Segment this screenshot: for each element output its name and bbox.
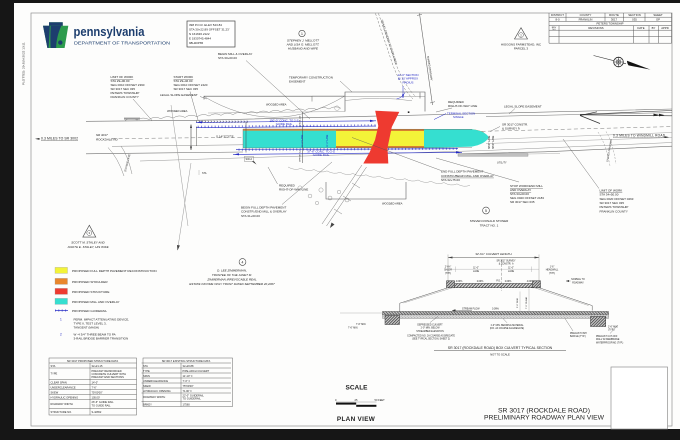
svg-text:ESTATE INCOME ONLY TRUST DATED: ESTATE INCOME ONLY TRUST DATED SEPTEMBER…: [189, 282, 275, 286]
svg-text:7'-0" CLEAR: 7'-0" CLEAR: [525, 296, 528, 309]
svg-text:APPD: APPD: [661, 26, 669, 30]
svg-text:PROPOSED MILL AND OVERLAY: PROPOSED MILL AND OVERLAY: [72, 300, 120, 304]
svg-text:JUDITH E. STALEY, HIS WIFE: JUDITH E. STALEY, HIS WIFE: [67, 245, 109, 249]
svg-text:3017: 3017: [611, 17, 618, 21]
svg-text:ROCKDALE RD: ROCKDALE RD: [96, 138, 119, 142]
svg-text:DEPARTMENT OF TRANSPORTATION: DEPARTMENT OF TRANSPORTATION: [74, 41, 170, 46]
svg-text:SCOTT M. STALEY AND: SCOTT M. STALEY AND: [71, 240, 105, 244]
svg-text:7'-3" ±: 7'-3" ±: [183, 379, 191, 383]
svg-text:1'-0" MIN. BELOW: 1'-0" MIN. BELOW: [421, 328, 441, 330]
svg-text:(TYP.): (TYP.): [445, 273, 452, 275]
svg-text:7'-6": 7'-6": [92, 385, 97, 389]
svg-text:RIGHT-OF-WAY LINE: RIGHT-OF-WAY LINE: [279, 187, 308, 191]
svg-text:PROPOSED SHOULDER: PROPOSED SHOULDER: [72, 280, 108, 284]
svg-text:SR 3017 (ROCKDALE ROAD) BOX CU: SR 3017 (ROCKDALE ROAD) BOX CULVERT TYPI…: [448, 346, 553, 350]
svg-text:ROADWAY WIDTH: ROADWAY WIDTH: [51, 402, 73, 406]
svg-text:PARCEL 3: PARCEL 3: [514, 47, 529, 51]
svg-text:3'-6" RISE: 3'-6" RISE: [517, 297, 519, 308]
svg-text:PLAN VIEW: PLAN VIEW: [337, 416, 376, 423]
svg-text:98H20P65: 98H20P65: [189, 41, 204, 45]
svg-text:75°00'00": 75°00'00": [92, 390, 103, 394]
svg-text:DEPRESSED CULVERT: DEPRESSED CULVERT: [417, 324, 443, 326]
svg-text:TO GUIDE RAIL: TO GUIDE RAIL: [92, 403, 112, 407]
svg-text:75°00'00": 75°00'00": [183, 384, 194, 388]
svg-text:WOODED AREA: WOODED AREA: [266, 103, 287, 107]
svg-text:RIGHT-OF-WAY LINE: RIGHT-OF-WAY LINE: [448, 104, 477, 108]
svg-text:0.3 MILES TO WINDMILL ROAD: 0.3 MILES TO WINDMILL ROAD: [613, 133, 666, 137]
svg-text:FRANKLIN: FRANKLIN: [579, 17, 593, 21]
svg-text:LEGAL SLOPE EASEMENT: LEGAL SLOPE EASEMENT: [504, 104, 542, 108]
svg-text:OP: OP: [656, 17, 660, 21]
svg-text:32+21.15: 32+21.15: [92, 364, 103, 368]
svg-text:8-0: 8-0: [555, 17, 559, 21]
svg-text:STEVEN RONALD STONER: STEVEN RONALD STONER: [470, 219, 509, 223]
svg-text:STRUCTURE NO.: STRUCTURE NO.: [51, 410, 73, 414]
svg-text:NORMAL TO: NORMAL TO: [571, 278, 585, 281]
svg-text:P.G.: P.G.: [496, 280, 501, 282]
svg-text:REVISIONS: REVISIONS: [588, 26, 603, 30]
svg-text:PRECAST CUT-OFF: PRECAST CUT-OFF: [596, 335, 618, 338]
svg-text:WATERPROOFING (TYP.): WATERPROOFING (TYP.): [596, 341, 623, 344]
svg-text:1: 1: [301, 32, 303, 36]
svg-text:HYDRAULIC OPENING: HYDRAULIC OPENING: [51, 395, 79, 399]
svg-text:S 14°37'37"E: S 14°37'37"E: [216, 135, 234, 139]
svg-text:398 P.O.R. ELEV 523.84: 398 P.O.R. ELEV 523.84: [189, 23, 222, 27]
svg-text:(TYP.): (TYP.): [549, 273, 556, 275]
svg-text:32+20.88: 32+20.88: [183, 364, 194, 368]
svg-text:PETERS TOWNSHIP: PETERS TOWNSHIP: [597, 22, 624, 26]
svg-text:SR 3017 SEC 035: SR 3017 SEC 035: [174, 87, 199, 91]
svg-text:WOODED AREA: WOODED AREA: [382, 202, 403, 206]
svg-text:STREAMBED ELEVATION: STREAMBED ELEVATION: [416, 330, 444, 333]
svg-text:WALL W/ MEMBRANE: WALL W/ MEMBRANE: [596, 338, 620, 341]
svg-text:TO GUIDERAIL: TO GUIDERAIL: [183, 397, 202, 401]
svg-text:STA: STA: [51, 364, 56, 368]
svg-text:D. LEE ZIMMERMAN,: D. LEE ZIMMERMAN,: [217, 269, 247, 273]
svg-text:TANGENT (MASH): TANGENT (MASH): [74, 325, 100, 329]
svg-text:PROPOSED GUIDERAIL: PROPOSED GUIDERAIL: [72, 309, 107, 313]
svg-text:CLEAR SPAN: CLEAR SPAN: [51, 380, 67, 384]
svg-text:E 1930745.4844: E 1930745.4844: [189, 37, 211, 41]
svg-text:7'-6" MIN.: 7'-6" MIN.: [348, 328, 358, 330]
svg-text:11'-0" LANE: 11'-0" LANE: [326, 134, 329, 147]
svg-text:2'-6" MIN.: 2'-6" MIN.: [608, 326, 618, 328]
svg-text:0.09%: 0.09%: [492, 307, 500, 310]
svg-text:STA: STA: [143, 364, 148, 368]
svg-text:1: 1: [60, 317, 62, 321]
svg-text:SR 3017 (ROCKDALE ROAD): SR 3017 (ROCKDALE ROAD): [498, 408, 590, 414]
svg-text:SINGLE: SINGLE: [453, 115, 464, 119]
svg-text:pennsylvania: pennsylvania: [74, 25, 146, 39]
svg-text:2'-6¾": 2'-6¾": [445, 266, 452, 269]
svg-text:STREAM FLOW: STREAM FLOW: [462, 307, 480, 310]
svg-text:& SURVEY ℏ: & SURVEY ℏ: [502, 126, 520, 130]
svg-text:TRACT NO. 1: TRACT NO. 1: [480, 224, 499, 228]
svg-text:PIPE-ARCH CULVERT: PIPE-ARCH CULVERT: [183, 369, 210, 373]
svg-text:SR 3017 EXISTING STRUCTURE DAT: SR 3017 EXISTING STRUCTURE DATA: [162, 359, 211, 363]
svg-text:DATE: DATE: [637, 26, 644, 30]
svg-text:PRECAST END SECTIONS: PRECAST END SECTIONS: [92, 375, 125, 379]
svg-text:GUIDE RAIL: GUIDE RAIL: [313, 153, 330, 157]
svg-text:& CONSTR. ℏ: & CONSTR. ℏ: [499, 263, 514, 266]
svg-text:4.00%: 4.00%: [456, 281, 463, 283]
svg-text:5: 5: [485, 209, 487, 213]
svg-text:N 161636.2122: N 161636.2122: [189, 32, 210, 36]
svg-text:CONSTR./BEGIN MILL AND OVERLAY: CONSTR./BEGIN MILL AND OVERLAY: [441, 174, 494, 178]
svg-text:71.00' ±: 71.00' ±: [183, 389, 193, 393]
svg-text:0.3 MILES TO SR 3002: 0.3 MILES TO SR 3002: [41, 136, 78, 140]
svg-text:22'-0" GUIDERAIL: 22'-0" GUIDERAIL: [183, 393, 205, 397]
svg-text:STA 30+00.00: STA 30+00.00: [218, 56, 237, 60]
svg-text:EASEMENT: EASEMENT: [289, 80, 306, 84]
svg-text:(SEE TYPICAL SECTION, SHEET 2): (SEE TYPICAL SECTION, SHEET 2): [412, 338, 450, 341]
svg-text:SCALE: SCALE: [345, 384, 368, 391]
svg-text:105.00': 105.00': [92, 395, 101, 399]
svg-text:BY: BY: [652, 26, 656, 30]
svg-text:26'-6" GUIDE RAIL: 26'-6" GUIDE RAIL: [92, 400, 115, 404]
svg-text:FRANKLIN COUNTY: FRANKLIN COUNTY: [111, 95, 139, 99]
svg-text:(NO. 2A COARSE AGGREGATE): (NO. 2A COARSE AGGREGATE): [490, 327, 524, 330]
svg-text:TYPE: TYPE: [51, 372, 58, 376]
svg-text:PLOTTED: 29-JUN-2022 13:11: PLOTTED: 29-JUN-2022 13:11: [22, 42, 26, 85]
svg-text:14'-0": 14'-0": [92, 380, 99, 384]
svg-text:UNDERCLEARANCE: UNDERCLEARANCE: [51, 385, 76, 389]
svg-text:RADIUS: RADIUS: [403, 80, 414, 84]
svg-text:STA 30+22.89 OFFSET 31.23': STA 30+22.89 OFFSET 31.23': [189, 28, 230, 32]
svg-text:FRANKLIN COUNTY: FRANKLIN COUNTY: [600, 209, 628, 213]
svg-text:2.00%: 2.00%: [477, 281, 484, 283]
svg-text:SR 3017 PROPOSED STRUCTURE DAT: SR 3017 PROPOSED STRUCTURE DATA: [67, 359, 118, 363]
svg-text:HYDRAULIC OPENING: HYDRAULIC OPENING: [143, 389, 171, 393]
svg-text:NOT TO SCALE: NOT TO SCALE: [490, 352, 510, 356]
svg-text:BRKEY: BRKEY: [143, 402, 152, 406]
svg-text:GUIDE RAIL: GUIDE RAIL: [276, 122, 293, 126]
svg-text:UNDERCLEARANCE: UNDERCLEARANCE: [143, 379, 168, 383]
svg-text:11'-0" LANE: 11'-0" LANE: [301, 134, 304, 147]
svg-text:OFFSET 12: OFFSET 12: [300, 150, 302, 162]
svg-text:STA 31+50: STA 31+50: [299, 115, 302, 127]
svg-text:SHLDR: SHLDR: [444, 270, 452, 272]
svg-text:SHIFT LANE: SHIFT LANE: [492, 135, 495, 149]
svg-text:LEGAL SLOPE EASEMENT: LEGAL SLOPE EASEMENT: [160, 93, 198, 97]
svg-text:LANE: LANE: [473, 270, 479, 273]
svg-text:TYPE: TYPE: [143, 369, 150, 373]
svg-text:1'-6": 1'-6": [550, 267, 555, 269]
svg-text:2.00%: 2.00%: [505, 281, 512, 283]
svg-text:035: 035: [632, 17, 637, 21]
svg-text:2: 2: [60, 332, 62, 336]
svg-text:STA 32+75.00: STA 32+75.00: [441, 178, 460, 182]
svg-text:ZIMMERMAN IRREVOCABLE REAL: ZIMMERMAN IRREVOCABLE REAL: [206, 277, 257, 281]
svg-text:PRECAST FISH: PRECAST FISH: [570, 332, 587, 335]
svg-text:SPAN: SPAN: [143, 374, 150, 378]
svg-text:ROADWAY: ROADWAY: [572, 281, 584, 284]
svg-text:3-RAIL BRIDGE BARRIER TRANSITI: 3-RAIL BRIDGE BARRIER TRANSITION: [74, 336, 129, 340]
svg-text:1'-0" MIN. BEDDING MATERIAL: 1'-0" MIN. BEDDING MATERIAL: [490, 324, 524, 327]
svg-text:PRELIMINARY ROADWAY PLAN VIEW: PRELIMINARY ROADWAY PLAN VIEW: [484, 416, 604, 422]
svg-text:SKEW: SKEW: [143, 384, 151, 388]
svg-text:COMPACTED NO. 2A COARSE AGGREG: COMPACTED NO. 2A COARSE AGGREGATE: [407, 334, 455, 337]
svg-text:NO: NO: [552, 29, 556, 31]
svg-text:4: 4: [242, 260, 244, 264]
svg-text:7'-6" MIN.: 7'-6" MIN.: [356, 324, 366, 326]
svg-text:SR 3017 SEC 035: SR 3017 SEC 035: [510, 200, 535, 204]
svg-text:SR 3017: SR 3017: [96, 133, 108, 137]
svg-text:BAFFLE (TYP.): BAFFLE (TYP.): [570, 335, 586, 338]
svg-text:STA: STA: [202, 172, 207, 175]
svg-text:PROPOSED STRUCTURE: PROPOSED STRUCTURE: [72, 290, 109, 294]
svg-text:50 FEET: 50 FEET: [375, 398, 386, 402]
svg-text:SR 3017 SURVEY: SR 3017 SURVEY: [497, 260, 516, 262]
svg-text:17560: 17560: [183, 402, 191, 406]
svg-text:TRUSTEE OF THE JANET M.: TRUSTEE OF THE JANET M.: [212, 273, 252, 277]
svg-text:LANE: LANE: [508, 270, 514, 273]
svg-text:HUSBAND AND WIFE: HUSBAND AND WIFE: [288, 47, 319, 51]
svg-text:WOODED AREA: WOODED AREA: [167, 109, 188, 113]
svg-text:STA 31+60.00: STA 31+60.00: [241, 214, 260, 218]
svg-text:SKEW: SKEW: [51, 390, 59, 394]
svg-text:ROADWAY WIDTH: ROADWAY WIDTH: [143, 395, 165, 399]
svg-text:PROPOSED FULL DEPTH PAVEMENT R: PROPOSED FULL DEPTH PAVEMENT RECONSTRUCT…: [72, 269, 157, 273]
svg-text:UTILITY: UTILITY: [497, 161, 507, 165]
svg-text:SHIFT LANE: SHIFT LANE: [488, 135, 491, 149]
svg-text:SW-2: SW-2: [246, 157, 253, 161]
svg-text:11'-10" ±: 11'-10" ±: [183, 374, 194, 378]
svg-text:HEADWALL: HEADWALL: [546, 269, 559, 272]
svg-text:S-42652: S-42652: [92, 410, 102, 414]
svg-text:32'-6¾" CULVERT LENGTH: 32'-6¾" CULVERT LENGTH: [475, 252, 511, 256]
